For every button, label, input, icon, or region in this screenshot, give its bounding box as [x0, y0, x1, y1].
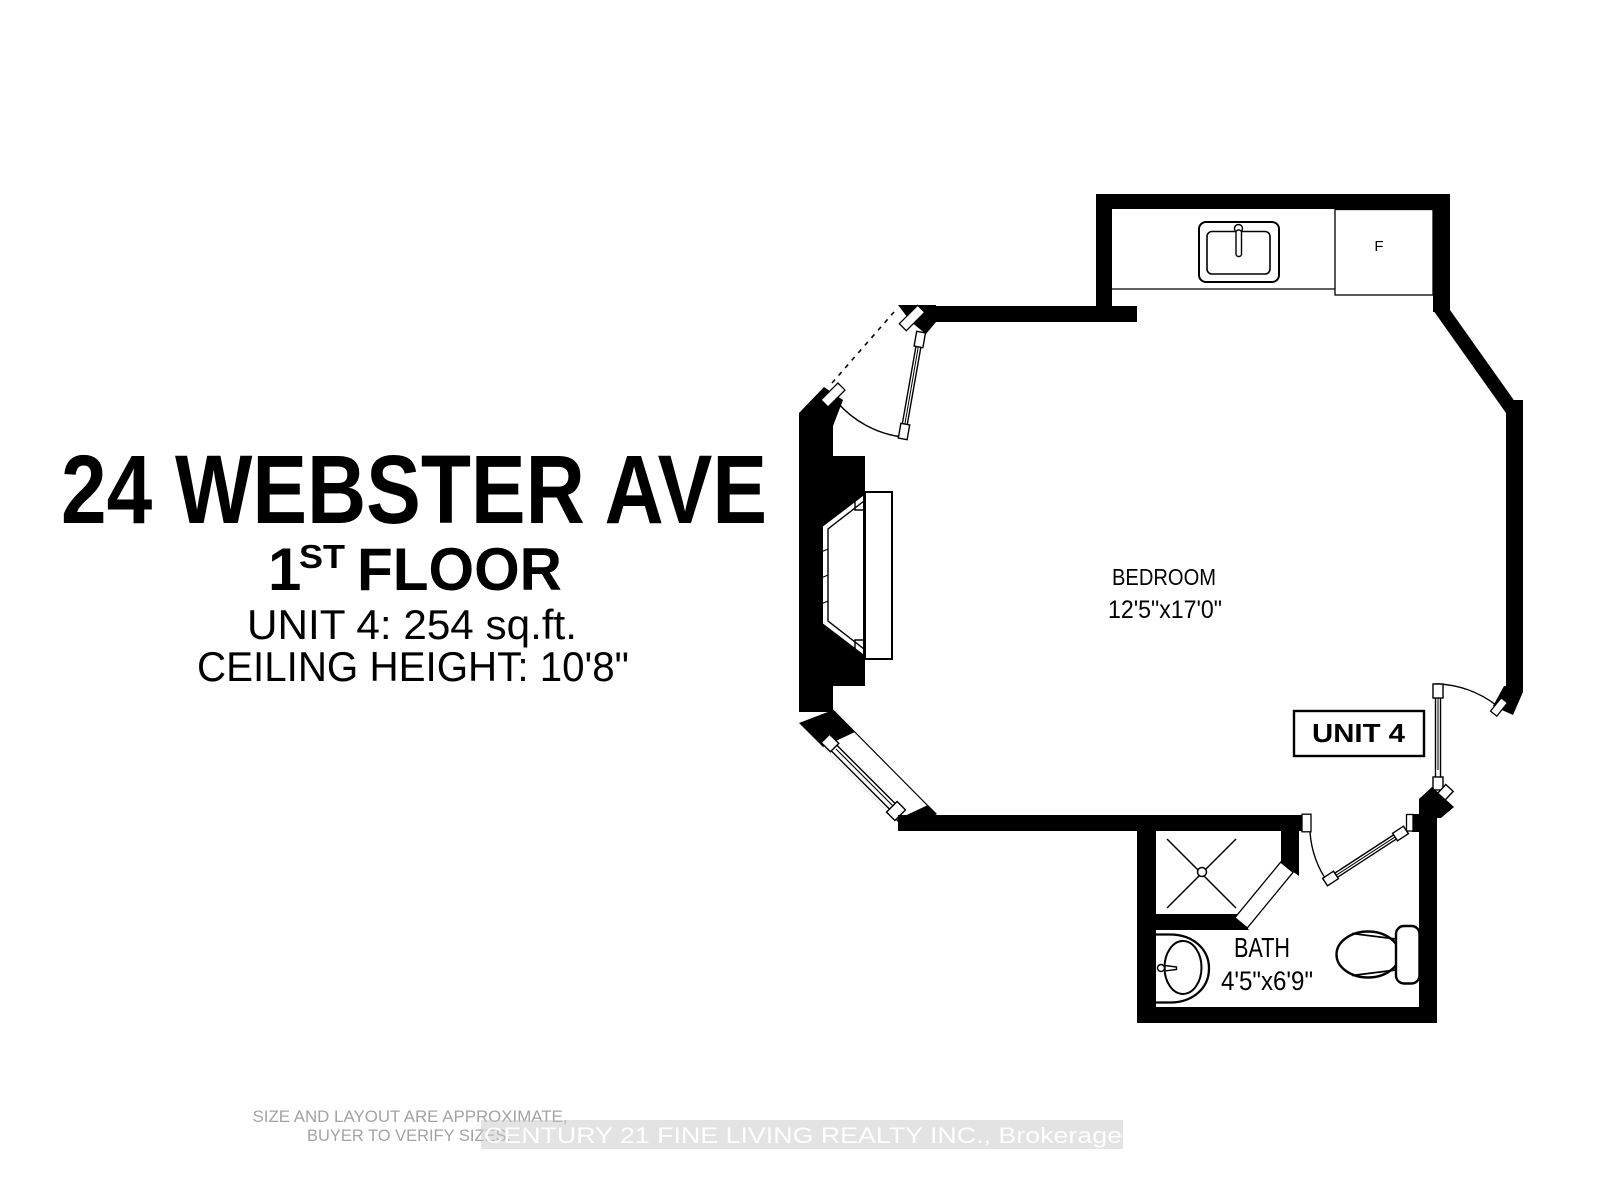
svg-text:UNIT 4: UNIT 4 [1312, 718, 1406, 748]
svg-text:BEDROOM: BEDROOM [1112, 564, 1216, 590]
svg-text:FLOOR: FLOOR [357, 536, 562, 603]
svg-text:BATH: BATH [1234, 932, 1290, 963]
svg-text:1: 1 [268, 536, 301, 603]
svg-text:F: F [1374, 238, 1383, 255]
svg-text:BUYER TO VERIFY SIZES.: BUYER TO VERIFY SIZES. [307, 1127, 511, 1145]
svg-text:CENTURY 21 FINE LIVING REALTY: CENTURY 21 FINE LIVING REALTY INC., Brok… [484, 1123, 1122, 1148]
svg-text:4'5"x6'9": 4'5"x6'9" [1221, 966, 1313, 996]
svg-text:CEILING HEIGHT: 10'8": CEILING HEIGHT: 10'8" [197, 643, 629, 690]
svg-text:24 WEBSTER AVE: 24 WEBSTER AVE [61, 435, 767, 544]
svg-text:12'5"x17'0": 12'5"x17'0" [1108, 596, 1222, 624]
svg-text:UNIT 4: 254 sq.ft.: UNIT 4: 254 sq.ft. [247, 601, 577, 648]
svg-text:ST: ST [299, 538, 345, 575]
